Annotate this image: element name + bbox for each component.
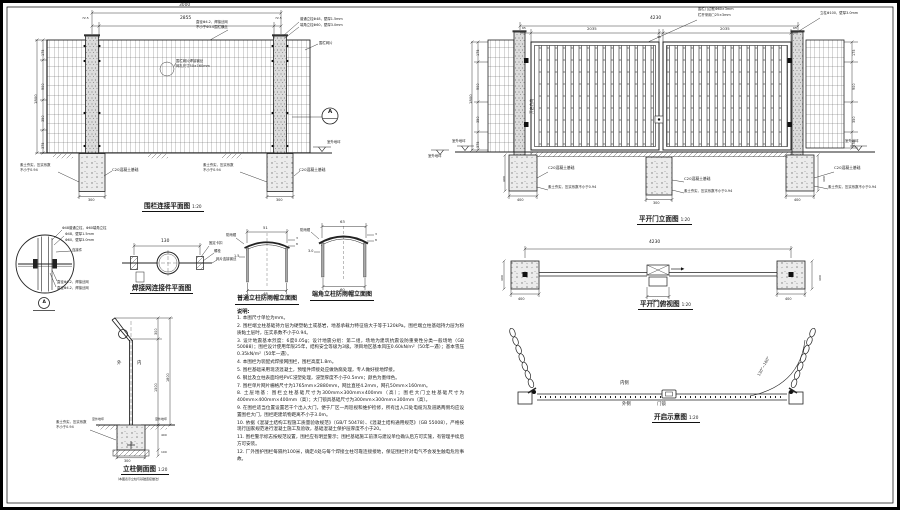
fence-detail-ref: A: [328, 110, 332, 116]
note-item-12: 12. 厂外围护围栏每隔约100米，确定4处与每个焊接立柱可靠连接接地，保证围栏…: [237, 450, 464, 464]
side-view-title: 立柱侧面图1:20: [121, 466, 169, 475]
connector-label-2: 螺栓: [214, 250, 221, 253]
note-item-7: 7. 围栏单片网片栅格尺寸为1765mm×2880mm，网丝直径4.2mm，网孔…: [237, 384, 464, 391]
gate-label-soil-right: 素土夯实，压实系数不小于0.94: [828, 186, 876, 189]
cap-corner-title: 端角立柱防雨帽立面图: [310, 292, 374, 301]
cap-corner-dim-r2: 8: [375, 239, 377, 242]
fence-title-text: 围栏连接平面图: [144, 202, 190, 210]
cap-corner-label: 防雨帽: [300, 229, 310, 232]
detail-a-ref: A: [43, 301, 46, 305]
note-item-4: 4. 本围栏为装配式焊接网围栏，围栏高度1.8m。: [237, 360, 464, 367]
note-item-1: 1. 本图尺寸单位为mm。: [237, 316, 464, 323]
detail-a-label-4: 连接件: [72, 249, 82, 252]
fence-dim-v2: 900: [42, 84, 45, 90]
fence-ann-wire-2: 不小于Φ3.0围栏横丝: [196, 26, 228, 29]
fence-dim-v3: 350: [42, 116, 45, 122]
gate-label-frame-1: 围栏门边框Φ60×3mm: [698, 8, 734, 11]
opening-label-lock: 门锁: [657, 403, 666, 407]
top-view-dim-found-right: 400: [785, 298, 791, 301]
gate-dim-rv1: 175: [853, 50, 856, 56]
opening-title: 开启示意图1:20: [652, 414, 700, 423]
fence-label-c20-right: C20混凝土基础: [299, 168, 325, 172]
gate-linework: [455, 18, 875, 202]
gate-dim-found-mid: 300: [653, 202, 659, 205]
cap-corner-dim-wall: 3.0: [308, 250, 313, 253]
side-view-dim-gravel: 100: [161, 451, 167, 454]
cap-common-dim-wall: 1.5: [234, 255, 239, 258]
fence-label-ground: 室外地坪: [327, 141, 341, 144]
gate-dim-found-right: 400: [794, 199, 800, 202]
gate-title-text: 平开门立面图: [639, 215, 679, 223]
gate-dim-found-depth-right: 400: [823, 176, 826, 182]
fence-dim-v1: 175: [42, 50, 45, 56]
gate-dim-v2: 900: [477, 84, 480, 90]
cap-corner-dim-top: 63: [340, 220, 345, 224]
gate-label-ground-right: 室外地坪: [845, 140, 859, 143]
gate-dim-v3: 350: [477, 117, 480, 123]
fence-label-c20-left: C20混凝土基础: [112, 168, 138, 172]
detail-a-label-6: 直径Φ4.2，焊接丝网: [57, 287, 89, 290]
top-view-dim-side-left: 400: [501, 275, 504, 281]
gate-dim-gap: 30: [657, 36, 661, 39]
connector-label-3: 网片连接钢丝: [216, 258, 236, 261]
fence-linework: [35, 10, 449, 199]
cap-common-linework: [236, 229, 295, 294]
gate-dim-end-left: 65: [522, 27, 526, 30]
opening-title-scale: 1:20: [689, 415, 698, 420]
cap-common-title-text: 普通立柱防雨帽立面图: [237, 295, 297, 302]
side-view-dim-depth: 400: [161, 434, 167, 437]
note-item-2: 2. 围栏端立柱基础持力层为硬塑黏土或基岩，地基承载力特征值大于等于120kPa…: [237, 324, 464, 338]
notes-block: 说明: 1. 本图尺寸单位为mm。 2. 围栏端立柱基础持力层为硬塑黏土或基岩，…: [237, 309, 464, 463]
side-view-title-scale: 1:20: [158, 467, 167, 472]
fence-label-soil-mid-2: 不小于0.94: [203, 169, 221, 172]
fence-dim-found-right: 300: [276, 199, 282, 202]
fence-label-mesh: 围栏网片: [319, 42, 333, 45]
gate-dim-found-left: 400: [517, 199, 523, 202]
side-view-dim-arm: 300: [155, 329, 158, 335]
fence-label-post-corner: 端角立柱Φ60，壁厚3.0mm: [300, 24, 343, 27]
opening-title-text: 开启示意图: [654, 413, 687, 421]
gate-label-c20-left: C20混凝土基础: [548, 166, 574, 170]
cap-common-dim-r2: 8: [296, 243, 298, 246]
note-item-3: 3. 设计地震基本烈度：6度0.05g；设计地震分组：第二组，场地为建筑抗震设防…: [237, 339, 464, 359]
connector-title: 焊接网连接件平面图: [130, 285, 193, 294]
gate-title: 平开门立面图1:20: [637, 216, 692, 225]
side-view-title-text: 立柱侧面图: [123, 465, 156, 473]
gate-dim-v1: 175: [477, 50, 480, 56]
note-item-9: 9. 在围栏适当位置设置若干个出入大门，便于厂区一周巡视和维护检修，所有出入口处…: [237, 406, 464, 420]
fence-title-scale: 1:20: [192, 204, 201, 209]
detail-a-label-3: Φ60，壁厚3.0mm: [65, 239, 94, 242]
side-view-dim-post: 1500: [155, 383, 158, 392]
fence-dim-overall: 3000: [179, 4, 190, 8]
gate-title-scale: 1:20: [681, 217, 690, 222]
fence-dim-end-right: 72.5: [275, 17, 282, 20]
connector-linework: [122, 243, 217, 282]
side-view-label-soil-1: 素土夯实，压实系数: [56, 421, 87, 424]
fence-ann-mesh-2: 网孔尺寸50×160mm: [176, 65, 210, 68]
top-view-dim-found-left: 400: [518, 298, 524, 301]
notes-heading: 说明:: [237, 309, 464, 315]
top-view-title-text: 平开门俯视图: [640, 300, 680, 308]
note-item-6: 6. 钢丝及立柱表面均经PVC浸塑处理，浸塑厚度不小于0.5mm；颜色为墨绿色。: [237, 376, 464, 383]
cap-common-dim-r1: 3: [296, 237, 298, 240]
detail-a-linework: [16, 230, 74, 311]
gate-dim-leaf-right: 2035: [720, 27, 730, 31]
cap-common-title: 普通立柱防雨帽立面图: [235, 296, 299, 305]
fence-dim-inner: 2855: [180, 17, 191, 21]
side-view-subtitle: （本图表示立柱与基础连接做法）: [116, 478, 161, 481]
side-view-label-ground-left: 室外地坪: [92, 418, 104, 421]
opening-label-inner: 内侧: [620, 382, 629, 386]
gate-dim-v4: 375: [477, 142, 480, 148]
side-view-label-ground-right: 室外地坪: [155, 418, 167, 421]
gate-dim-total-height: 1800: [469, 94, 473, 104]
gate-label-open-dir: 开启方向: [530, 99, 534, 114]
gate-label-post: 立柱Φ100，壁厚3.0mm: [820, 12, 858, 15]
cap-common-label: 防雨帽: [226, 234, 236, 237]
fence-ann-wire-1: 直径Φ4.2，焊接丝网: [196, 21, 228, 24]
side-view-dim-total: 1800: [167, 373, 170, 382]
connector-title-text: 焊接网连接件平面图: [132, 284, 191, 292]
opening-linework: [509, 328, 817, 404]
detail-a-label-5: 直径Φ4.2，焊接丝网: [57, 281, 89, 284]
cap-corner-linework: [311, 223, 374, 290]
connector-label-1: 固定卡扣: [209, 242, 223, 245]
gate-dim-rv2: 900: [853, 84, 856, 90]
side-view-label-out: 外: [117, 362, 121, 366]
gate-dim-end-right: 65: [793, 27, 797, 30]
gate-dim-found-depth-left: 400: [503, 176, 506, 182]
gate-label-frame-2: 栏杆采用□25×3mm: [698, 14, 731, 17]
opening-label-outer: 外侧: [622, 403, 631, 407]
gate-label-ground-left: 室外地坪: [452, 140, 466, 143]
note-item-11: 11. 围栏警示标志按规范设置，围栏应有明显警示；围栏基础施工前须与建设单位确认…: [237, 435, 464, 449]
gate-label-soil-mid: 素土夯实，压实系数不小于0.94: [684, 190, 732, 193]
cap-corner-title-text: 端角立柱防雨帽立面图: [312, 291, 372, 298]
gate-label-c20-right: C20混凝土基础: [834, 166, 860, 170]
top-view-title: 平开门俯视图1:20: [638, 301, 693, 310]
gate-label-c20-mid: C20混凝土基础: [684, 177, 710, 181]
gate-dim-rv3: 350: [853, 117, 856, 123]
side-view-dim-found: 300: [124, 460, 130, 463]
side-view-linework: [90, 317, 175, 460]
connector-dim-width: 130: [161, 240, 169, 244]
fence-dim-end-left: 72.5: [82, 17, 89, 20]
detail-a-label-2: Φ48，壁厚1.5mm: [65, 233, 94, 236]
fence-dim-found-left: 300: [88, 199, 94, 202]
side-view-label-in: 内: [137, 362, 141, 366]
gate-dim-leaf-left: 2035: [587, 27, 597, 31]
fence-label-soil-mid-1: 素土夯实，压实系数: [203, 164, 234, 167]
fence-dim-total-height: 1800: [34, 94, 38, 104]
side-view-label-soil-2: 不小于0.94: [56, 426, 74, 429]
top-view-title-scale: 1:20: [682, 302, 691, 307]
detail-a-label-1: Φ48普通立柱，Φ60端角立柱: [62, 227, 106, 230]
gate-label-soil-left: 素土夯实，压实系数不小于0.94: [548, 186, 596, 189]
top-view-dim-side-right: 400: [819, 275, 822, 281]
fence-ann-mesh-1: 围栏网片焊接钢丝: [176, 60, 203, 63]
top-view-linework: [503, 246, 814, 299]
fence-label-post-common: 普通立柱Φ48，壁厚1.5mm: [300, 18, 343, 21]
drawing-sheet: 3000 2855 72.5 72.5 1800 175 900 350 375…: [0, 0, 900, 510]
note-item-10: 10. 依据《混凝土结构工程施工质量验收规范》（GB/T 50478）、《混凝土…: [237, 421, 464, 435]
cap-common-dim-top: 51: [263, 226, 268, 230]
note-item-8: 8. 土层地基：围栏立柱基础尺寸为300mm×300mm×400mm（高）；围栏…: [237, 391, 464, 405]
fence-label-soil-left-1: 素土夯实，压实系数: [20, 164, 51, 167]
note-item-5: 5. 围栏基础采用现浇混凝土，预埋件焊接处应做防腐处理，专人做好接地焊接。: [237, 368, 464, 375]
fence-title: 围栏连接平面图1:20: [142, 203, 204, 212]
cap-corner-dim-r1: 3: [375, 233, 377, 236]
gate-dim-overall: 4230: [650, 17, 661, 21]
top-view-dim-overall: 4230: [649, 241, 660, 245]
fence-dim-v4: 375: [42, 143, 45, 149]
fence-label-soil-left-2: 不小于0.94: [20, 169, 38, 172]
fence-label-ground-2: 室外地坪: [428, 155, 442, 158]
